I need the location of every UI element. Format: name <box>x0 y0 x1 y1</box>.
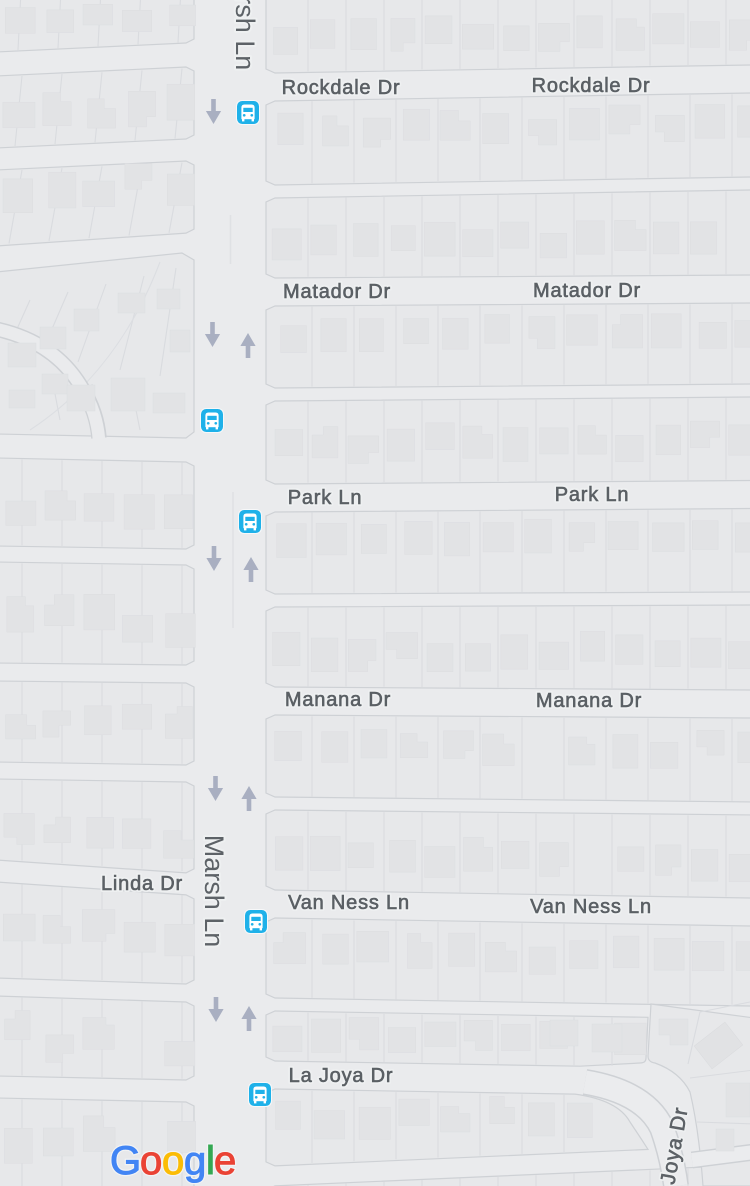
svg-text:Manana Dr: Manana Dr <box>536 690 642 712</box>
svg-text:e: e <box>214 1139 236 1183</box>
svg-text:Linda Dr: Linda Dr <box>101 873 183 895</box>
svg-text:o: o <box>162 1139 184 1183</box>
svg-text:Van Ness Ln: Van Ness Ln <box>530 896 652 918</box>
svg-text:Manana Dr: Manana Dr <box>285 689 391 711</box>
svg-text:Park Ln: Park Ln <box>555 484 630 506</box>
svg-text:Matador Dr: Matador Dr <box>283 281 391 303</box>
svg-text:Rockdale Dr: Rockdale Dr <box>282 77 401 99</box>
svg-text:G: G <box>110 1139 141 1183</box>
svg-text:g: g <box>184 1139 206 1183</box>
svg-text:Park Ln: Park Ln <box>288 487 363 509</box>
svg-text:Rockdale Dr: Rockdale Dr <box>532 75 651 97</box>
svg-text:o: o <box>140 1139 162 1183</box>
svg-text:Van Ness Ln: Van Ness Ln <box>288 892 410 914</box>
svg-text:Marsh Ln: Marsh Ln <box>199 835 229 948</box>
svg-text:Marsh Ln: Marsh Ln <box>230 0 260 70</box>
svg-text:La Joya Dr: La Joya Dr <box>289 1065 394 1087</box>
svg-text:Matador Dr: Matador Dr <box>533 280 641 302</box>
